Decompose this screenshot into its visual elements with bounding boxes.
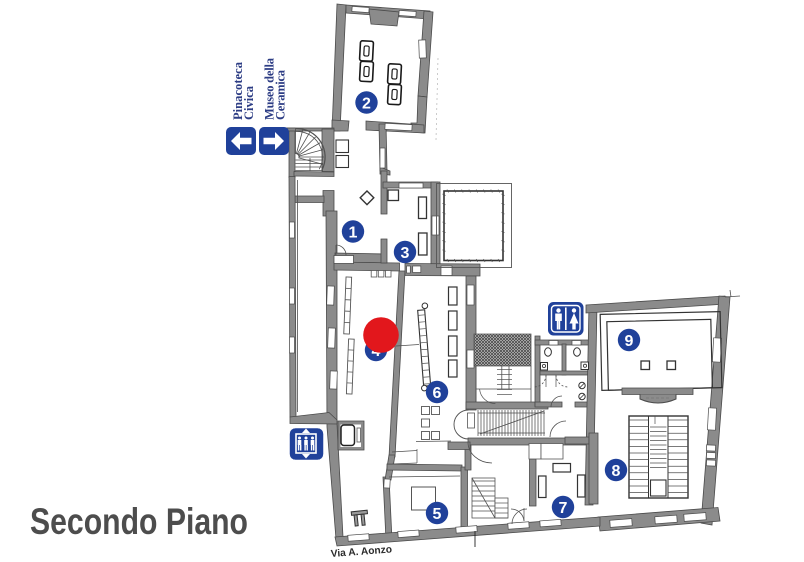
svg-text:2: 2 (362, 95, 371, 112)
svg-text:Secondo Piano: Secondo Piano (30, 501, 248, 542)
svg-text:Via A. Aonzo: Via A. Aonzo (330, 544, 392, 560)
svg-text:1: 1 (349, 224, 358, 241)
svg-text:9: 9 (625, 333, 634, 350)
svg-text:Ceramica: Ceramica (274, 69, 288, 120)
svg-text:8: 8 (612, 463, 621, 480)
svg-text:6: 6 (433, 385, 442, 402)
svg-text:5: 5 (433, 506, 442, 523)
svg-text:Civica: Civica (242, 85, 256, 120)
svg-text:7: 7 (559, 500, 568, 517)
svg-text:3: 3 (401, 245, 410, 262)
